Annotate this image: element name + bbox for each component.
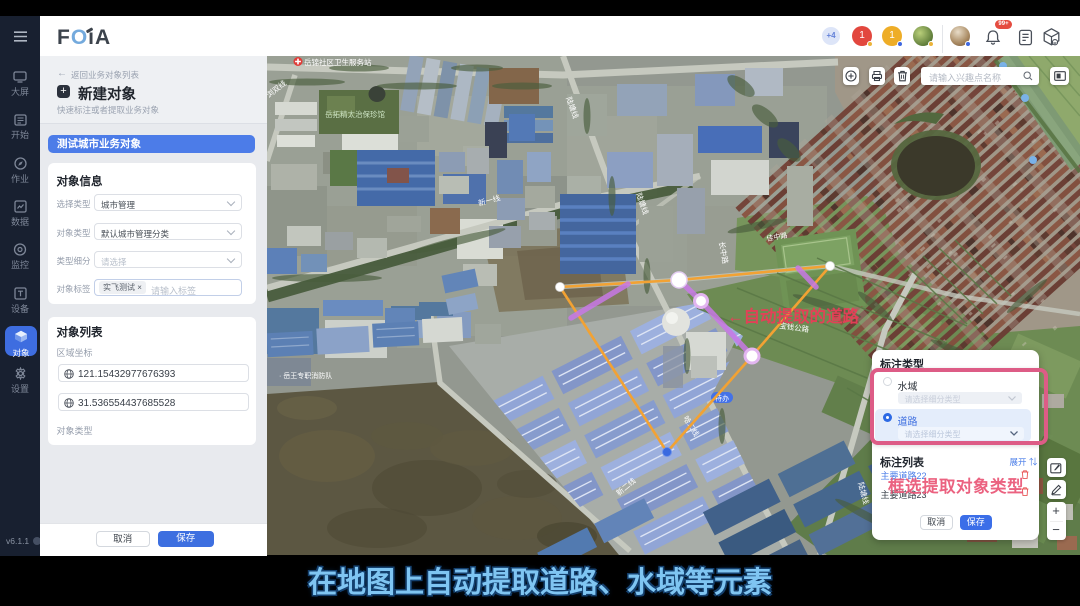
svg-text:岳拓精太治保珍馆: 岳拓精太治保珍馆 [325, 109, 385, 119]
svg-text:岳锦社区卫生服务站: 岳锦社区卫生服务站 [304, 57, 372, 67]
svg-text:· 岳王专职消防队: · 岳王专职消防队 [279, 371, 332, 380]
svg-text:←自动提取的道路: ←自动提取的道路 [727, 306, 860, 326]
